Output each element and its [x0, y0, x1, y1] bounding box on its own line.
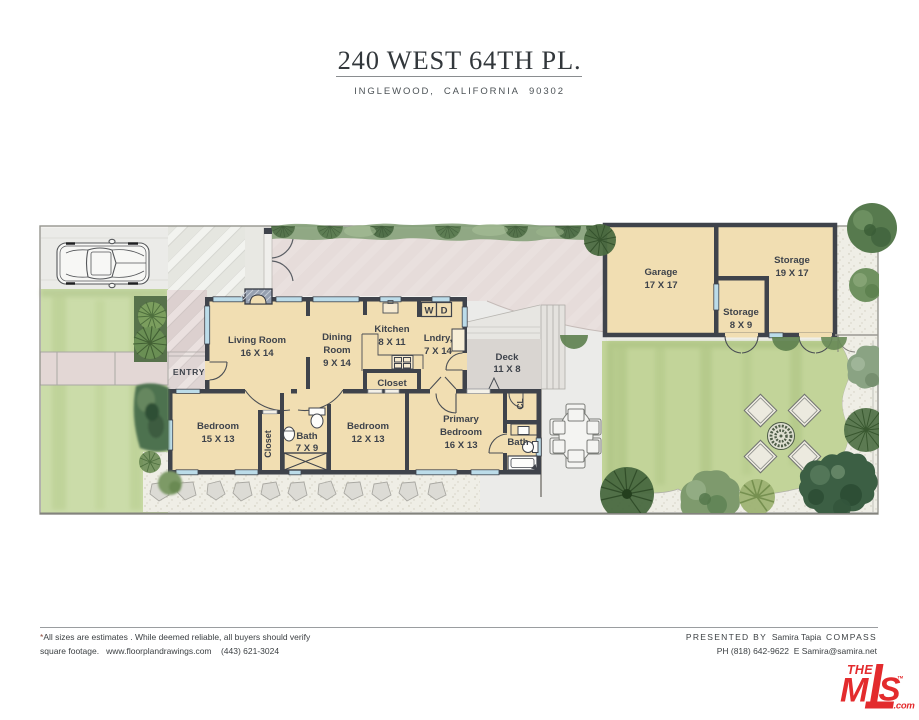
svg-text:Kitchen: Kitchen — [374, 324, 409, 335]
svg-text:Closet: Closet — [377, 378, 407, 389]
svg-text:D: D — [441, 306, 448, 317]
svg-text:8 X 9: 8 X 9 — [730, 320, 752, 331]
svg-text:Bedroom: Bedroom — [347, 421, 389, 432]
svg-text:17 X 17: 17 X 17 — [644, 280, 677, 291]
svg-text:19 X 17: 19 X 17 — [775, 268, 808, 279]
svg-text:Living Room: Living Room — [228, 335, 286, 346]
svg-text:Closet: Closet — [263, 430, 273, 458]
svg-text:Deck: Deck — [496, 352, 520, 363]
svg-text:Primary: Primary — [443, 414, 479, 425]
svg-text:Lndry,: Lndry, — [424, 333, 453, 344]
svg-text:Room: Room — [323, 345, 350, 356]
svg-text:ENTRY: ENTRY — [173, 367, 205, 377]
svg-text:Bath: Bath — [507, 437, 528, 448]
svg-text:.com: .com — [894, 701, 916, 712]
svg-text:Garage: Garage — [644, 267, 677, 278]
svg-text:CL: CL — [515, 398, 525, 409]
svg-text:Storage: Storage — [774, 255, 810, 266]
svg-text:THE: THE — [847, 663, 873, 677]
svg-text:M: M — [840, 672, 869, 710]
svg-text:11 X 8: 11 X 8 — [493, 364, 521, 375]
svg-text:16 X 14: 16 X 14 — [240, 348, 274, 359]
svg-text:9 X 14: 9 X 14 — [323, 358, 351, 369]
svg-text:7 X 14: 7 X 14 — [424, 346, 452, 357]
svg-text:Bedroom: Bedroom — [440, 427, 482, 438]
svg-text:16 X 13: 16 X 13 — [444, 440, 477, 451]
svg-text:Storage: Storage — [723, 307, 759, 318]
svg-text:15 X 13: 15 X 13 — [201, 434, 234, 445]
svg-text:7 X 9: 7 X 9 — [296, 443, 318, 454]
svg-text:Bedroom: Bedroom — [197, 421, 239, 432]
svg-text:Dining: Dining — [322, 332, 352, 343]
svg-text:W: W — [425, 306, 434, 317]
svg-text:Bath: Bath — [296, 431, 317, 442]
svg-text:12 X 13: 12 X 13 — [351, 434, 384, 445]
svg-text:8 X 11: 8 X 11 — [378, 337, 406, 348]
svg-text:TM: TM — [898, 675, 904, 680]
